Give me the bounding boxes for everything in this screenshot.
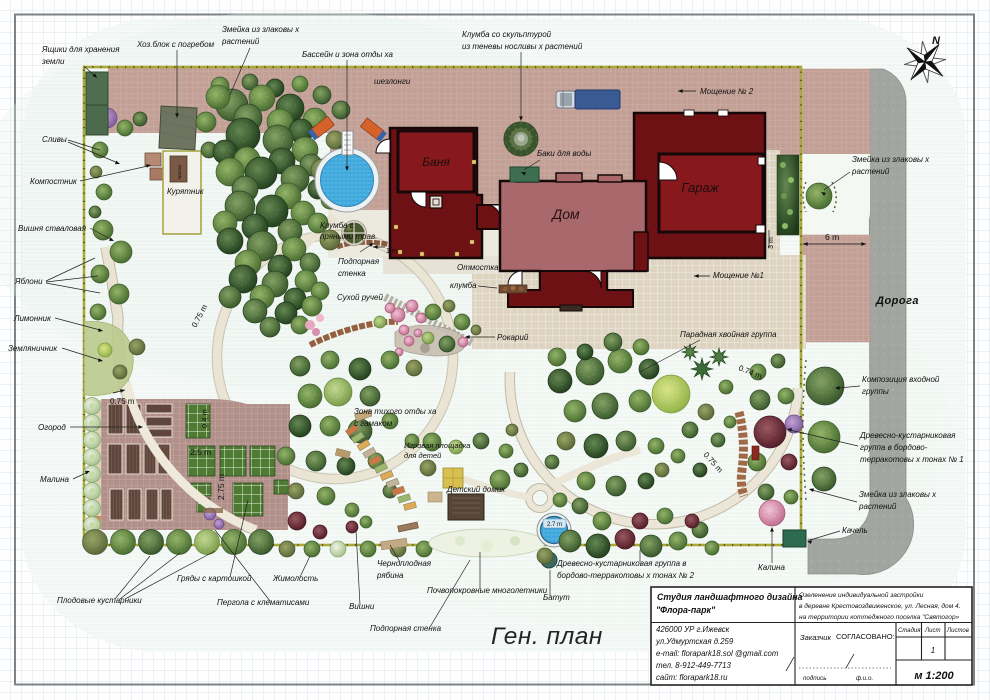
svg-text:шезлонги: шезлонги: [374, 77, 411, 86]
svg-text:Калина: Калина: [758, 563, 785, 572]
svg-text:Зона тихого отды ха: Зона тихого отды ха: [354, 407, 437, 416]
svg-text:0.4 m: 0.4 m: [200, 409, 209, 428]
svg-text:рябина: рябина: [376, 571, 404, 580]
svg-text:Отмостка: Отмостка: [457, 263, 499, 272]
svg-text:подпись: подпись: [803, 675, 826, 682]
svg-text:2.5 m: 2.5 m: [190, 447, 211, 457]
svg-text:1: 1: [931, 646, 935, 655]
svg-text:"Флора-парк": "Флора-парк": [656, 605, 716, 615]
svg-text:растений: растений: [221, 37, 260, 46]
svg-text:Кролик: Кролик: [177, 164, 182, 180]
svg-text:Хоз.блок с погребом: Хоз.блок с погребом: [136, 40, 215, 49]
svg-text:Баки для воды: Баки для воды: [537, 149, 591, 158]
svg-text:СОГЛАСОВАНО:: СОГЛАСОВАНО:: [836, 632, 895, 641]
svg-text:Бассейн и зона отды ха: Бассейн и зона отды ха: [302, 50, 393, 59]
svg-text:Жимолость: Жимолость: [272, 574, 318, 583]
svg-text:в деревне Крестовоздвиженское,: в деревне Крестовоздвиженское, ул. Лесна…: [799, 602, 961, 610]
svg-text:пряными трав.: пряными трав.: [320, 232, 377, 241]
svg-text:Подпорная: Подпорная: [338, 257, 380, 266]
svg-text:бордово-терракотовы х тонах №: бордово-терракотовы х тонах № 2: [557, 571, 695, 580]
svg-text:для детей: для детей: [404, 451, 442, 460]
svg-text:Баня: Баня: [422, 155, 450, 169]
svg-text:Заказчик: Заказчик: [800, 633, 831, 642]
svg-text:растений: растений: [851, 167, 890, 176]
svg-text:ул.Удмуртская д.259: ул.Удмуртская д.259: [655, 637, 734, 646]
svg-text:Качель: Качель: [842, 526, 868, 535]
svg-text:Лимонник: Лимонник: [13, 314, 52, 323]
svg-text:Компостник: Компостник: [30, 177, 78, 186]
svg-text:Парадная хвойная группа: Парадная хвойная группа: [680, 330, 777, 339]
svg-text:клумба: клумба: [450, 281, 477, 290]
svg-text:Сухой ручей: Сухой ручей: [337, 293, 383, 302]
svg-text:Вишня стваловая: Вишня стваловая: [18, 224, 87, 233]
svg-text:Малина: Малина: [40, 475, 69, 484]
svg-text:Почвопокровные многолетники: Почвопокровные многолетники: [427, 586, 548, 595]
svg-text:Клумба с: Клумба с: [320, 221, 354, 230]
svg-text:терракотовы х тонах № 1: терракотовы х тонах № 1: [860, 455, 964, 464]
svg-text:Рокарий: Рокарий: [497, 333, 529, 342]
svg-text:Курятник: Курятник: [167, 187, 205, 196]
svg-text:6 m: 6 m: [825, 232, 839, 242]
svg-text:426000 УР г.Ижевск: 426000 УР г.Ижевск: [656, 625, 730, 634]
svg-text:группа в бордово-: группа в бордово-: [860, 443, 928, 452]
svg-text:N: N: [932, 35, 941, 47]
svg-text:стенка: стенка: [338, 269, 366, 278]
svg-text:Древесно-кустарниковая группа: Древесно-кустарниковая группа в: [556, 559, 686, 568]
svg-text:Древесно-кустарниковая: Древесно-кустарниковая: [859, 431, 956, 440]
svg-text:Змейка из злаковы х: Змейка из злаковы х: [222, 25, 300, 34]
svg-text:Игровая площадка: Игровая площадка: [404, 441, 470, 450]
svg-text:Гараж: Гараж: [681, 180, 719, 195]
svg-text:Земляничник: Земляничник: [8, 344, 58, 353]
svg-text:Озеленение индивидуальной заст: Озеленение индивидуальной застройки: [799, 591, 924, 599]
svg-text:Дорога: Дорога: [875, 295, 919, 307]
svg-text:из теневы носливы х растений: из теневы носливы х растений: [462, 42, 583, 51]
svg-text:Студия ландшафтного дизайна: Студия ландшафтного дизайна: [657, 592, 803, 602]
svg-text:Гряды с картошкой: Гряды с картошкой: [177, 574, 252, 583]
svg-text:растений: растений: [858, 502, 897, 511]
svg-text:Огород: Огород: [38, 423, 66, 432]
svg-text:Ящики для хранения: Ящики для хранения: [41, 45, 120, 54]
svg-text:Вишни: Вишни: [349, 602, 375, 611]
svg-text:группы: группы: [862, 387, 889, 396]
svg-text:м 1:200: м 1:200: [914, 670, 954, 682]
svg-text:Стадия: Стадия: [898, 628, 921, 634]
svg-text:0.75 m: 0.75 m: [110, 397, 135, 406]
svg-text:Композиция входной: Композиция входной: [862, 375, 940, 384]
svg-text:Змейка из злаковы х: Змейка из злаковы х: [852, 155, 930, 164]
svg-text:Дом: Дом: [550, 206, 580, 222]
svg-text:с гамаком: с гамаком: [354, 419, 393, 428]
svg-text:Ген. план: Ген. план: [491, 623, 603, 650]
svg-text:2.75 m: 2.75 m: [216, 474, 226, 500]
svg-text:земли: земли: [41, 57, 65, 66]
svg-text:e-mail: florapark18.sol @gmail: e-mail: florapark18.sol @gmail.com: [656, 649, 779, 658]
svg-text:Черноплодная: Черноплодная: [377, 559, 432, 568]
svg-text:Сливы: Сливы: [42, 135, 67, 144]
svg-text:на территории коттеджного посе: на территории коттеджного поселка "Свято…: [799, 613, 960, 621]
svg-text:Клумба со скульптурой: Клумба со скульптурой: [462, 30, 552, 39]
svg-text:2.7 m: 2.7 m: [547, 522, 562, 528]
svg-text:Листов: Листов: [946, 628, 969, 634]
svg-text:Пергола с клематисами: Пергола с клематисами: [217, 598, 310, 607]
svg-text:Мощение №1: Мощение №1: [713, 271, 764, 280]
svg-text:Плодовые кустарники: Плодовые кустарники: [57, 596, 142, 605]
svg-text:1 m: 1 m: [386, 248, 398, 255]
svg-text:Лист: Лист: [924, 628, 940, 634]
svg-text:Детский домик: Детский домик: [446, 485, 506, 494]
svg-text:Мощение № 2: Мощение № 2: [700, 87, 754, 96]
svg-text:сайт: florapark18.ru: сайт: florapark18.ru: [656, 673, 728, 682]
svg-text:Змейка из злаковы х: Змейка из злаковы х: [859, 490, 937, 499]
svg-text:тел. 8-912-449-7713: тел. 8-912-449-7713: [656, 661, 731, 670]
svg-text:Яблони: Яблони: [14, 277, 43, 286]
svg-text:ф.и.о.: ф.и.о.: [856, 675, 873, 682]
svg-text:Батут: Батут: [543, 593, 570, 602]
